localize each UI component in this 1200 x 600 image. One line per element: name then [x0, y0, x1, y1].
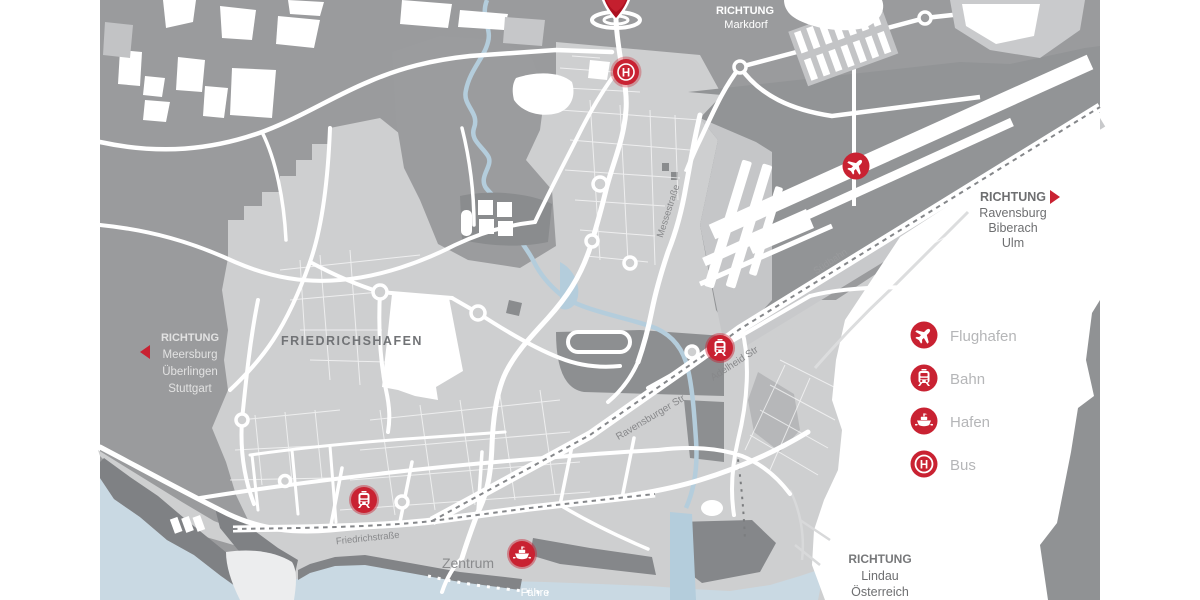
svg-text:Zentrum: Zentrum	[442, 555, 494, 571]
svg-text:RICHTUNG: RICHTUNG	[716, 5, 774, 17]
svg-text:H: H	[622, 68, 630, 80]
svg-text:H: H	[920, 460, 928, 472]
svg-text:Ulm: Ulm	[1002, 236, 1024, 250]
svg-text:Überlingen: Überlingen	[162, 366, 218, 378]
svg-text:Ravensburg: Ravensburg	[979, 206, 1046, 220]
svg-text:Österreich: Österreich	[851, 585, 909, 599]
svg-text:Meersburg: Meersburg	[163, 349, 218, 361]
svg-text:Stuttgart: Stuttgart	[168, 383, 212, 395]
svg-text:Biberach: Biberach	[988, 221, 1037, 235]
svg-text:RICHTUNG: RICHTUNG	[980, 190, 1046, 204]
svg-text:Flughafen: Flughafen	[950, 328, 1017, 345]
svg-text:Markdorf: Markdorf	[724, 19, 768, 31]
svg-text:RICHTUNG: RICHTUNG	[848, 552, 911, 566]
svg-text:Hafen: Hafen	[950, 414, 990, 431]
svg-text:Bus: Bus	[950, 457, 976, 474]
svg-text:Lindau: Lindau	[861, 569, 899, 583]
svg-text:Fähre: Fähre	[521, 587, 550, 599]
svg-text:Bahn: Bahn	[950, 371, 985, 388]
svg-text:FRIEDRICHSHAFEN: FRIEDRICHSHAFEN	[281, 334, 423, 348]
svg-text:RICHTUNG: RICHTUNG	[161, 332, 219, 344]
